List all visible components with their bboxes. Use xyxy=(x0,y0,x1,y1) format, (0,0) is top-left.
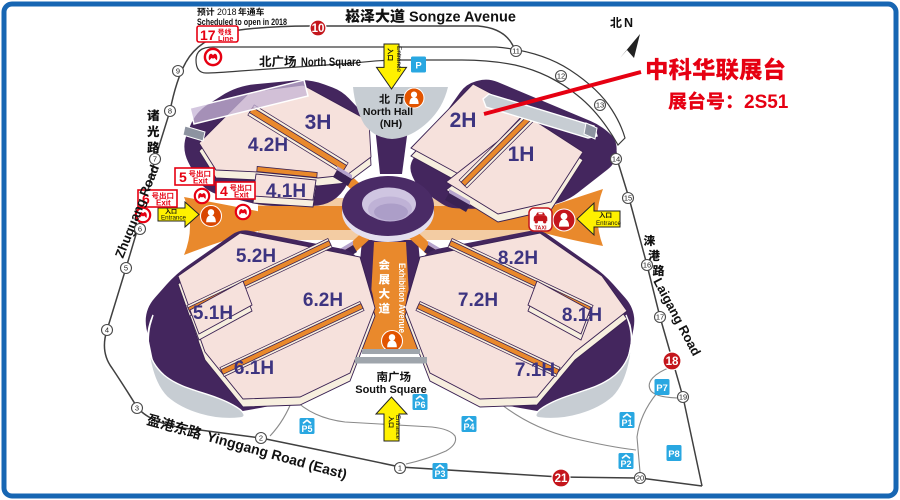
svg-text:4: 4 xyxy=(105,326,109,335)
svg-text:17: 17 xyxy=(200,27,216,43)
svg-text:North Hall: North Hall xyxy=(363,106,413,118)
svg-text:3: 3 xyxy=(135,404,139,413)
svg-text:N: N xyxy=(624,16,633,30)
svg-text:17: 17 xyxy=(656,313,664,322)
svg-text:P1: P1 xyxy=(621,418,632,428)
svg-text:6: 6 xyxy=(138,225,142,234)
svg-text:4.1H: 4.1H xyxy=(266,181,306,202)
svg-text:1: 1 xyxy=(398,464,402,473)
svg-text:7.1H: 7.1H xyxy=(515,360,555,381)
svg-text:6.1H: 6.1H xyxy=(234,358,274,379)
svg-text:8.2H: 8.2H xyxy=(498,248,538,269)
svg-text:20: 20 xyxy=(636,474,644,483)
svg-text:8: 8 xyxy=(168,107,172,116)
svg-text:9: 9 xyxy=(176,67,180,76)
svg-text:4: 4 xyxy=(220,183,228,199)
svg-text:7: 7 xyxy=(153,155,157,164)
svg-text:P3: P3 xyxy=(434,469,445,479)
svg-text:P: P xyxy=(415,61,422,72)
svg-text:13: 13 xyxy=(596,101,604,110)
svg-text:TAXI: TAXI xyxy=(534,225,547,231)
svg-text:5: 5 xyxy=(124,264,128,273)
svg-text:Songze Avenue: Songze Avenue xyxy=(409,10,516,26)
svg-text:P5: P5 xyxy=(301,424,312,434)
svg-text:10: 10 xyxy=(312,23,325,35)
svg-text:11: 11 xyxy=(512,47,520,56)
svg-text:Entrance: Entrance xyxy=(161,216,187,222)
svg-text:P2: P2 xyxy=(620,459,631,469)
svg-text:P4: P4 xyxy=(463,422,474,432)
svg-text:2H: 2H xyxy=(450,109,477,132)
svg-text:Line: Line xyxy=(218,34,233,43)
svg-text:Entrance: Entrance xyxy=(395,46,402,72)
svg-text:P8: P8 xyxy=(668,449,680,460)
svg-text:12: 12 xyxy=(557,72,565,81)
svg-text:North Square: North Square xyxy=(301,55,361,69)
svg-text:21: 21 xyxy=(555,473,568,485)
svg-text:Exit: Exit xyxy=(193,177,208,186)
svg-text:Exit: Exit xyxy=(234,191,249,200)
svg-text:18: 18 xyxy=(666,356,679,368)
svg-text:P6: P6 xyxy=(414,400,425,410)
svg-text:5.1H: 5.1H xyxy=(193,303,233,324)
svg-text:14: 14 xyxy=(612,155,620,164)
svg-text:15: 15 xyxy=(624,194,632,203)
svg-text:2: 2 xyxy=(259,434,263,443)
svg-text:(NH): (NH) xyxy=(380,118,402,130)
svg-text:Exhibition Avenue: Exhibition Avenue xyxy=(397,263,407,333)
svg-text:4.2H: 4.2H xyxy=(248,135,288,156)
svg-text:Entrance: Entrance xyxy=(394,415,400,440)
svg-text:P7: P7 xyxy=(656,383,668,394)
svg-text:5: 5 xyxy=(179,169,187,185)
svg-text:5.2H: 5.2H xyxy=(236,246,276,267)
svg-text:Exit: Exit xyxy=(156,199,171,208)
svg-text:16: 16 xyxy=(643,261,651,270)
svg-text:2018: 2018 xyxy=(217,7,237,17)
svg-text:6.2H: 6.2H xyxy=(303,290,343,311)
svg-text:8.1H: 8.1H xyxy=(562,305,602,326)
svg-text:7.2H: 7.2H xyxy=(458,290,498,311)
svg-text:3H: 3H xyxy=(305,111,332,134)
svg-text:Entrance: Entrance xyxy=(596,221,622,227)
svg-text:19: 19 xyxy=(679,393,687,402)
svg-text:1H: 1H xyxy=(508,143,535,166)
svg-text:2S51: 2S51 xyxy=(744,92,789,113)
